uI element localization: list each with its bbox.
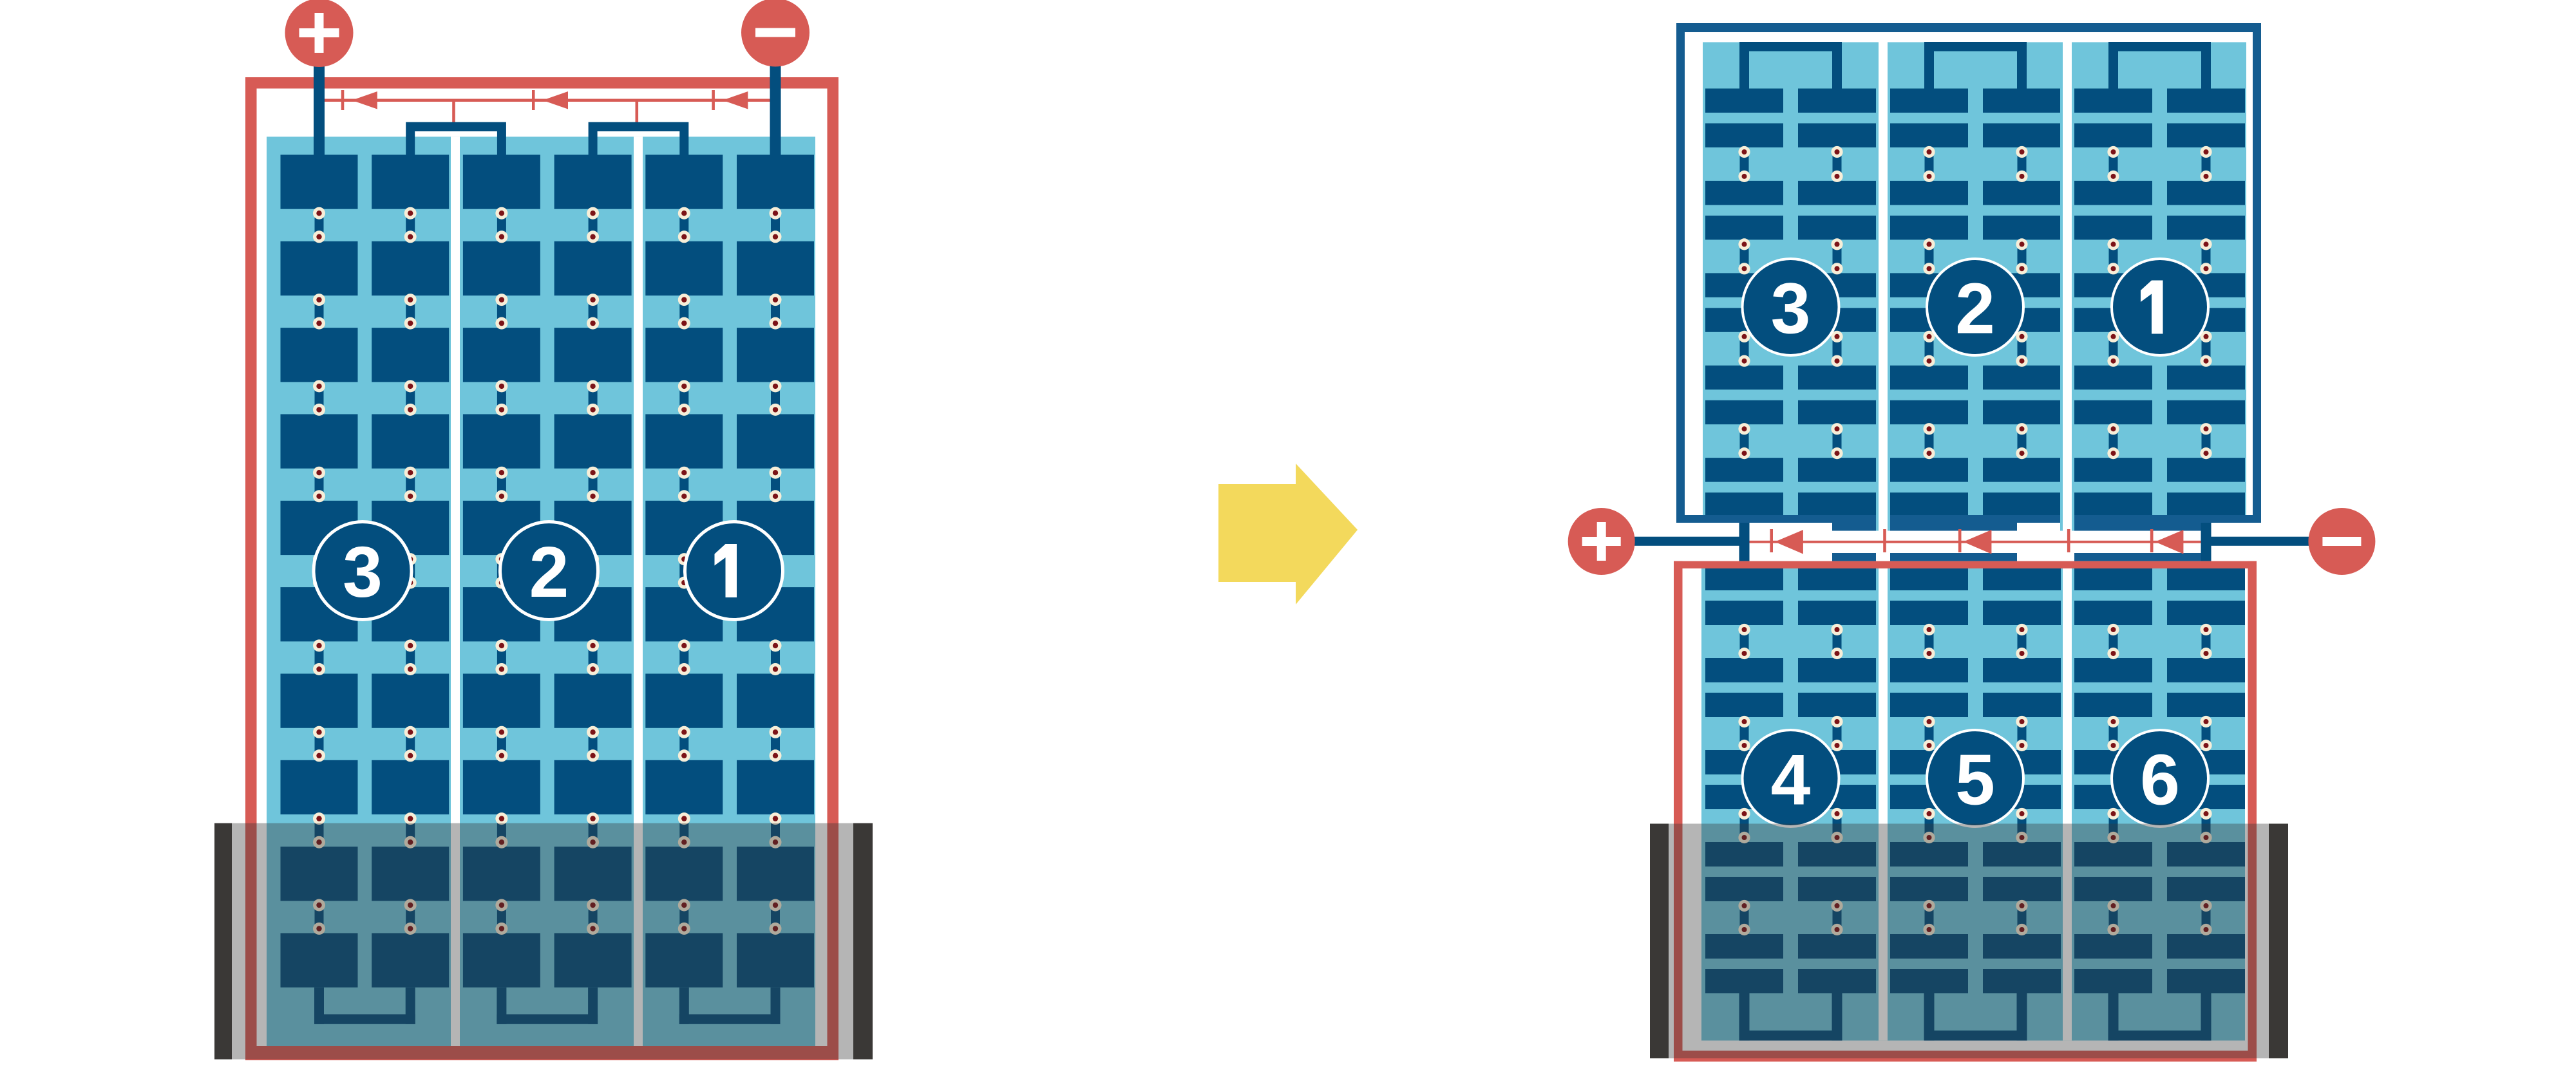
svg-text:5: 5	[1955, 740, 1995, 820]
svg-text:4: 4	[1771, 740, 1811, 820]
svg-text:3: 3	[343, 532, 383, 612]
svg-text:3: 3	[1771, 269, 1811, 349]
svg-text:2: 2	[529, 532, 569, 612]
svg-text:2: 2	[1955, 269, 1995, 349]
svg-text:6: 6	[2140, 740, 2180, 820]
